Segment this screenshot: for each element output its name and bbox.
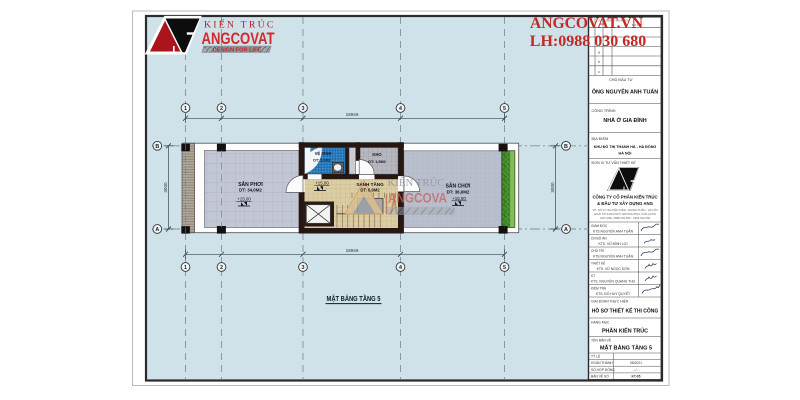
svg-text:18949: 18949	[346, 248, 359, 253]
svg-text:TÊN BẢN VẼ: TÊN BẢN VẼ	[591, 338, 612, 343]
svg-text:KTS.NGUYỄN ANH TUẤN: KTS.NGUYỄN ANH TUẤN	[593, 229, 634, 234]
svg-text:SỐ HỢP ĐỒNG: SỐ HỢP ĐỒNG	[591, 367, 615, 372]
svg-text:HẠNG MỤC: HẠNG MỤC	[591, 321, 610, 325]
svg-text:LH:0988 030 680: LH:0988 030 680	[530, 33, 646, 50]
svg-text:4: 4	[399, 265, 402, 271]
svg-text:CÔNG TRÌNH: CÔNG TRÌNH	[592, 108, 616, 113]
svg-text:KT-05: KT-05	[632, 375, 641, 379]
svg-text:KIỂM TRA: KIỂM TRA	[591, 285, 607, 290]
svg-text:3: 3	[302, 106, 305, 112]
svg-text:TỶ LỆ: TỶ LỆ	[591, 354, 601, 359]
svg-text:1: 1	[184, 265, 187, 271]
svg-text:ĐỊA ĐIỂM: ĐỊA ĐIỂM	[592, 136, 609, 141]
svg-text:a: a	[598, 51, 600, 55]
svg-text:1: 1	[184, 106, 187, 112]
svg-text:c: c	[598, 70, 600, 74]
svg-text:CÔNG TY CỔ PHẦN KIẾN TRÚC: CÔNG TY CỔ PHẦN KIẾN TRÚC	[592, 195, 657, 200]
svg-text:ANGCOVAT: ANGCOVAT	[202, 29, 275, 48]
svg-text:PHẦN KIẾN TRÚC: PHẦN KIẾN TRÚC	[602, 328, 648, 335]
svg-text:A: A	[155, 227, 159, 233]
svg-text:DT: 36,0M2: DT: 36,0M2	[447, 189, 470, 194]
svg-text:DESIGN FOR LIFE: DESIGN FOR LIFE	[213, 48, 262, 54]
svg-text:KTS.NGUYỄN ANH TUẤN: KTS.NGUYỄN ANH TUẤN	[593, 254, 634, 259]
svg-text:ANGCOVA: ANGCOVA	[388, 190, 447, 205]
svg-text:3: 3	[302, 265, 305, 271]
svg-text:DT: 34,0M2: DT: 34,0M2	[239, 188, 262, 193]
svg-text:ANGCOVAT.VN: ANGCOVAT.VN	[530, 15, 644, 32]
svg-text:NHÀ Ở GIA ĐÌNH: NHÀ Ở GIA ĐÌNH	[603, 116, 646, 124]
svg-text:3000: 3000	[550, 182, 555, 193]
svg-text:DT: 1,5M2: DT: 1,5M2	[368, 160, 386, 164]
svg-text:VỆ SINH: VỆ SINH	[315, 151, 332, 156]
svg-text:KHU ĐÔ THỊ THANH HÀ - HÀ ĐÔN: KHU ĐÔ THỊ THANH HÀ - HÀ ĐÔNG	[594, 144, 657, 149]
svg-text:CHỦ TRÌ: CHỦ TRÌ	[591, 248, 604, 253]
svg-text:4: 4	[399, 106, 402, 112]
svg-text:DT: 6,9M2: DT: 6,9M2	[360, 188, 380, 193]
svg-text:+15,00: +15,00	[452, 196, 466, 201]
svg-text:HOÀN THÀNH: HOÀN THÀNH	[591, 361, 613, 365]
svg-text:KTS. VŨ NGỌC SƠN: KTS. VŨ NGỌC SƠN	[597, 266, 630, 271]
svg-text:+15,00: +15,00	[315, 181, 329, 186]
svg-text:MẶT BẰNG TẦNG 5: MẶT BẰNG TẦNG 5	[600, 344, 652, 352]
svg-text:KHO: KHO	[372, 152, 382, 157]
svg-text:CHỦ ĐẦU TƯ: CHỦ ĐẦU TƯ	[609, 77, 634, 82]
svg-text:B: B	[155, 144, 159, 150]
svg-text:3000: 3000	[163, 182, 168, 193]
svg-text:KT: KT	[591, 274, 595, 278]
svg-text:SẢNH TẦNG: SẢNH TẦNG	[356, 181, 384, 187]
svg-text:18949: 18949	[346, 112, 359, 117]
svg-text:5: 5	[503, 106, 506, 112]
svg-text:BẢN VẼ SỐ: BẢN VẼ SỐ	[591, 374, 609, 379]
svg-text:HOTLINE: 0988 030 680 - 0368 9: HOTLINE: 0988 030 680 - 0368 910 050	[600, 216, 651, 220]
svg-text:KTS. ĐỖ HUY QUYẾT: KTS. ĐỖ HUY QUYẾT	[596, 291, 630, 296]
svg-text:KTS. NGUYỄN QUANG THU: KTS. NGUYỄN QUANG THU	[591, 279, 636, 284]
svg-text:HÀ NỘI: HÀ NỘI	[619, 151, 632, 156]
svg-text:KIẾN TRÚC: KIẾN TRÚC	[388, 176, 445, 189]
svg-text:HỒ SƠ THIẾT KẾ THI CÔNG: HỒ SƠ THIẾT KẾ THI CÔNG	[592, 307, 659, 315]
svg-text:GIÁM ĐỐC: GIÁM ĐỐC	[591, 223, 608, 228]
svg-text:CN ĐỒ ÁN: CN ĐỒ ÁN	[591, 235, 607, 240]
svg-text:2: 2	[220, 106, 223, 112]
svg-text:+15,00: +15,00	[237, 196, 251, 201]
svg-text:2: 2	[220, 265, 223, 271]
svg-text:ĐƠN VỊ TƯ VẤN THIẾT KẾ: ĐƠN VỊ TƯ VẤN THIẾT KẾ	[592, 160, 637, 165]
svg-text:GIAI ĐOẠN THỰC HIỆN: GIAI ĐOẠN THỰC HIỆN	[591, 299, 629, 304]
svg-text:A: A	[564, 227, 568, 233]
svg-text:DT: 5,0M2: DT: 5,0M2	[313, 159, 331, 163]
svg-text:B: B	[564, 144, 568, 150]
svg-text:KTS. VŨ ĐÌNH LỢI: KTS. VŨ ĐÌNH LỢI	[598, 241, 627, 246]
svg-text:..../....: ..../....	[632, 368, 640, 372]
svg-text:08/2021: 08/2021	[630, 361, 642, 365]
svg-text:& ĐẦU TƯ XÂY DỰNG ANG: & ĐẦU TƯ XÂY DỰNG ANG	[597, 201, 653, 206]
svg-text:THIẾT KẾ: THIẾT KẾ	[591, 260, 605, 265]
svg-text:5: 5	[503, 265, 506, 271]
svg-text:MẶT BẰNG TẦNG 5: MẶT BẰNG TẦNG 5	[327, 293, 382, 303]
svg-text:ÔNG NGUYỄN ANH TUẤN: ÔNG NGUYỄN ANH TUẤN	[592, 88, 658, 96]
svg-text:b: b	[598, 60, 600, 64]
